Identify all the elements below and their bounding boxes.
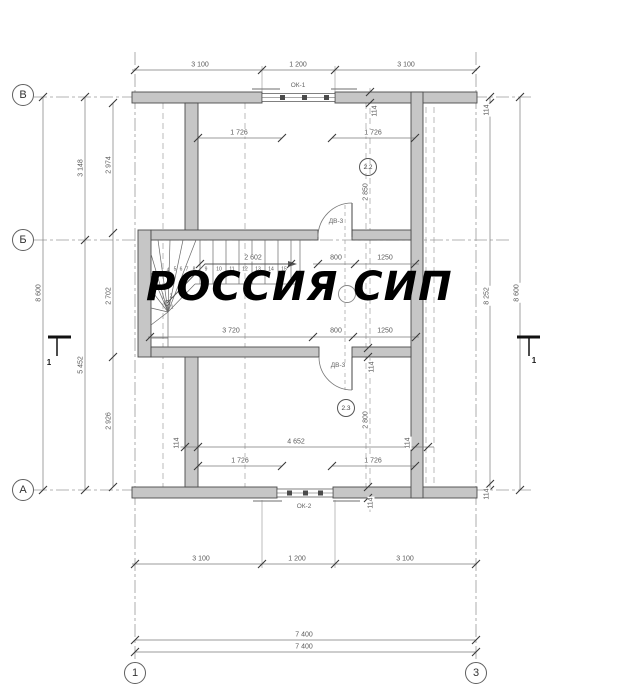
dimension-text: 8 600 (36, 283, 43, 303)
dimension-text: 114 (372, 104, 379, 117)
dimension-text: 114 (484, 487, 491, 500)
dimension-text: 8 252 (484, 286, 491, 306)
dimension-text: 800 (329, 328, 343, 335)
dimension-text: 2 926 (106, 411, 113, 431)
opening-label: ОК-2 (296, 504, 313, 511)
dimension-text: 1 200 (287, 556, 307, 563)
dimension-text: 3 100 (190, 62, 210, 69)
dimension-text: 2 800 (363, 410, 370, 430)
dimension-text: 3 100 (396, 62, 416, 69)
dimension-text: 1250 (376, 255, 394, 262)
opening-label: ОК-1 (290, 83, 307, 90)
dimension-text: 800 (329, 255, 343, 262)
dimension-text: 1 726 (229, 130, 249, 137)
dimension-text: 3 100 (395, 556, 415, 563)
dimension-text: 4 652 (286, 439, 306, 446)
dimension-text: 2 850 (363, 182, 370, 202)
section-mark-label: 1 (47, 359, 51, 367)
dimension-text: 8 600 (514, 283, 521, 303)
dimension-text: 3 100 (191, 556, 211, 563)
dimension-text: 7 400 (294, 644, 314, 651)
room-tag: 2.2 (359, 158, 377, 176)
axis-bubble-1: 1 (124, 662, 146, 684)
dimension-text: 2 974 (106, 155, 113, 175)
floor-plan-sheet: 3 1001 2003 1001 7261 7261142 8502 60280… (0, 0, 640, 699)
axis-bubble-Б: Б (12, 229, 34, 251)
dimension-text: 1 726 (363, 130, 383, 137)
dimension-text: 2 602 (243, 255, 263, 262)
axis-bubble-А: А (12, 479, 34, 501)
opening-label: ДВ-3 (330, 363, 347, 370)
dimension-text: 1250 (376, 328, 394, 335)
dimension-text: 1 200 (288, 62, 308, 69)
dimension-text: 5 452 (78, 355, 85, 375)
dimension-text: 2 702 (106, 286, 113, 306)
opening-label: ДВ-3 (328, 219, 345, 226)
room-tag: 2.3 (337, 399, 355, 417)
dimension-text: 3 720 (221, 328, 241, 335)
dimension-text: 114 (484, 103, 491, 116)
axis-bubble-В: В (12, 84, 34, 106)
dimension-text: 114 (174, 436, 181, 449)
dimension-text: 1 726 (230, 458, 250, 465)
dimension-text: 114 (368, 496, 375, 509)
axis-bubble-3: 3 (465, 662, 487, 684)
section-mark-label: 1 (532, 357, 536, 365)
dimension-text: 114 (369, 360, 376, 373)
dimension-text: 3 148 (78, 158, 85, 178)
dimension-text: 114 (405, 436, 412, 449)
dimension-text: 1 726 (363, 458, 383, 465)
watermark-text: РОССИЯ СИП (146, 264, 453, 310)
annotation-layer: 3 1001 2003 1001 7261 7261142 8502 60280… (0, 0, 640, 699)
dimension-text: 7 400 (294, 632, 314, 639)
